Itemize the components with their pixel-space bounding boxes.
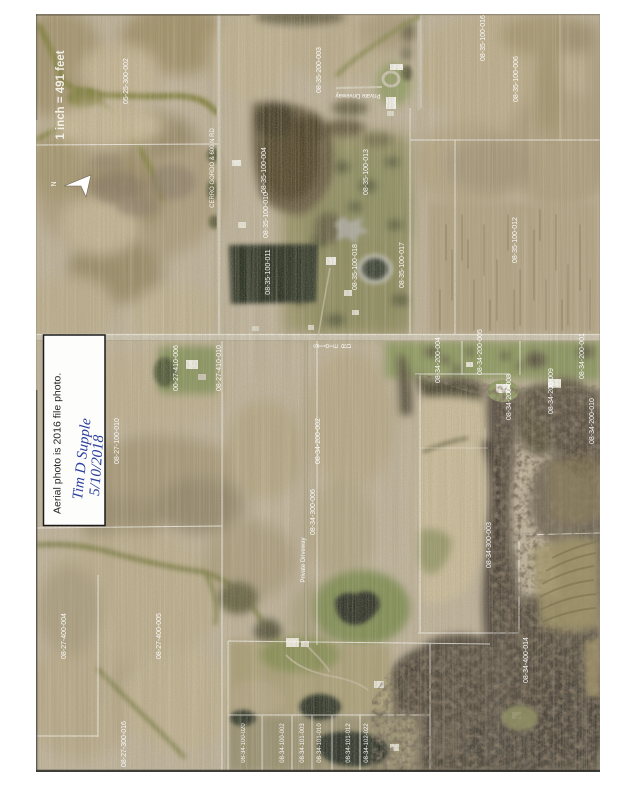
svg-text:08-35-100-006: 08-35-100-006 <box>513 56 520 102</box>
svg-text:08-34-200-008: 08-34-200-008 <box>506 374 513 420</box>
svg-text:08-34-200-002: 08-34-200-002 <box>315 418 322 464</box>
svg-text:1 inch = 491 feet: 1 inch = 491 feet <box>55 50 67 139</box>
svg-text:08-34-400-014: 08-34-400-014 <box>523 637 530 683</box>
svg-text:Aerial photo is 2016 file phot: Aerial photo is 2016 file photo. <box>52 373 64 514</box>
svg-text:Private Driveway: Private Driveway <box>335 92 380 98</box>
svg-text:08-34-101-010: 08-34-101-010 <box>317 723 323 763</box>
svg-text:08-34-200-005: 08-34-200-005 <box>477 329 484 375</box>
svg-text:08-27-300-016: 08-27-300-016 <box>121 721 128 767</box>
svg-text:08-27-410-010: 08-27-410-010 <box>216 345 223 391</box>
svg-text:08-35-100-018: 08-35-100-018 <box>352 244 359 290</box>
svg-text:08-34-200-009: 08-34-200-009 <box>548 368 555 414</box>
svg-text:D: D <box>346 343 353 348</box>
svg-text:08-27-400-005: 08-27-400-005 <box>156 613 163 659</box>
svg-text:05-25-300-002: 05-25-300-002 <box>123 58 130 104</box>
svg-text:08-35-100-012: 08-35-100-012 <box>512 217 519 263</box>
svg-text:08-35-200-003: 08-35-200-003 <box>316 47 323 93</box>
svg-text:08-34-101-003: 08-34-101-003 <box>300 723 306 763</box>
svg-text:08-34-200-004: 08-34-200-004 <box>435 337 442 383</box>
svg-text:08-34-300-003: 08-34-300-003 <box>486 522 493 568</box>
svg-text:08-27-400-004: 08-27-400-004 <box>61 613 68 659</box>
svg-text:08-35-100-016: 08-35-100-016 <box>480 15 487 61</box>
svg-text:08-34-200-010: 08-34-200-010 <box>589 398 596 444</box>
svg-text:08-27-100-010: 08-27-100-010 <box>114 418 121 464</box>
svg-text:08-34-300-006: 08-34-300-006 <box>310 489 317 535</box>
svg-text:08-34-100-002: 08-34-100-002 <box>280 723 286 763</box>
svg-text:Private Driveway: Private Driveway <box>301 537 307 582</box>
svg-text:08-34-101-012: 08-34-101-012 <box>346 723 352 763</box>
svg-text:08-34-200-001: 08-34-200-001 <box>579 333 586 379</box>
svg-text:08-34-102-022: 08-34-102-022 <box>364 723 370 763</box>
svg-text:08-35-100-011: 08-35-100-011 <box>265 249 272 295</box>
svg-text:08-35-100-017: 08-35-100-017 <box>399 242 406 288</box>
svg-text:08-35-100-004: 08-35-100-004 <box>261 147 268 193</box>
svg-text:08-35-100-010: 08-35-100-010 <box>263 192 270 238</box>
svg-text:00-27-410-006: 00-27-410-006 <box>173 345 180 391</box>
svg-text:N: N <box>51 181 58 186</box>
svg-text:CERRO GORDO & 600 N RD: CERRO GORDO & 600 N RD <box>210 127 216 207</box>
svg-text:E: E <box>333 343 340 348</box>
svg-text:08-35-100-013: 08-35-100-013 <box>363 149 370 195</box>
svg-text:08-34-100-020: 08-34-100-020 <box>241 723 247 763</box>
